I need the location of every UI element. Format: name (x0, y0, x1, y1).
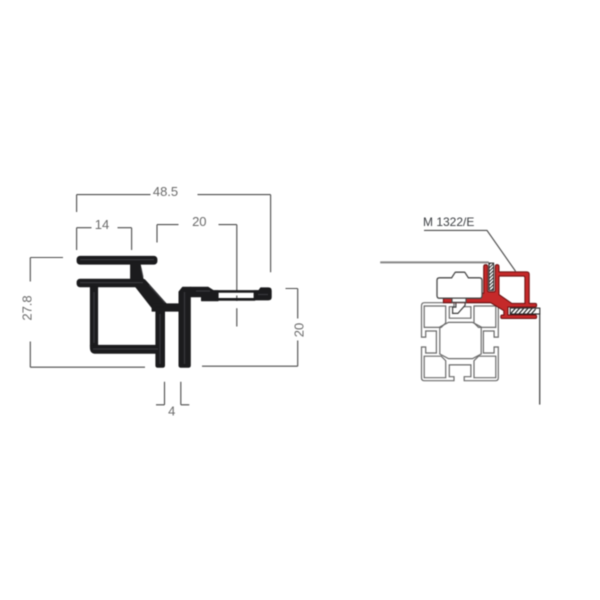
svg-text:48.5: 48.5 (153, 184, 178, 199)
svg-text:14: 14 (95, 217, 109, 232)
svg-text:4: 4 (168, 404, 175, 419)
svg-text:M 1322/E: M 1322/E (423, 215, 474, 229)
svg-text:27.8: 27.8 (20, 295, 35, 320)
svg-text:20: 20 (192, 214, 206, 229)
svg-text:20: 20 (292, 323, 307, 337)
